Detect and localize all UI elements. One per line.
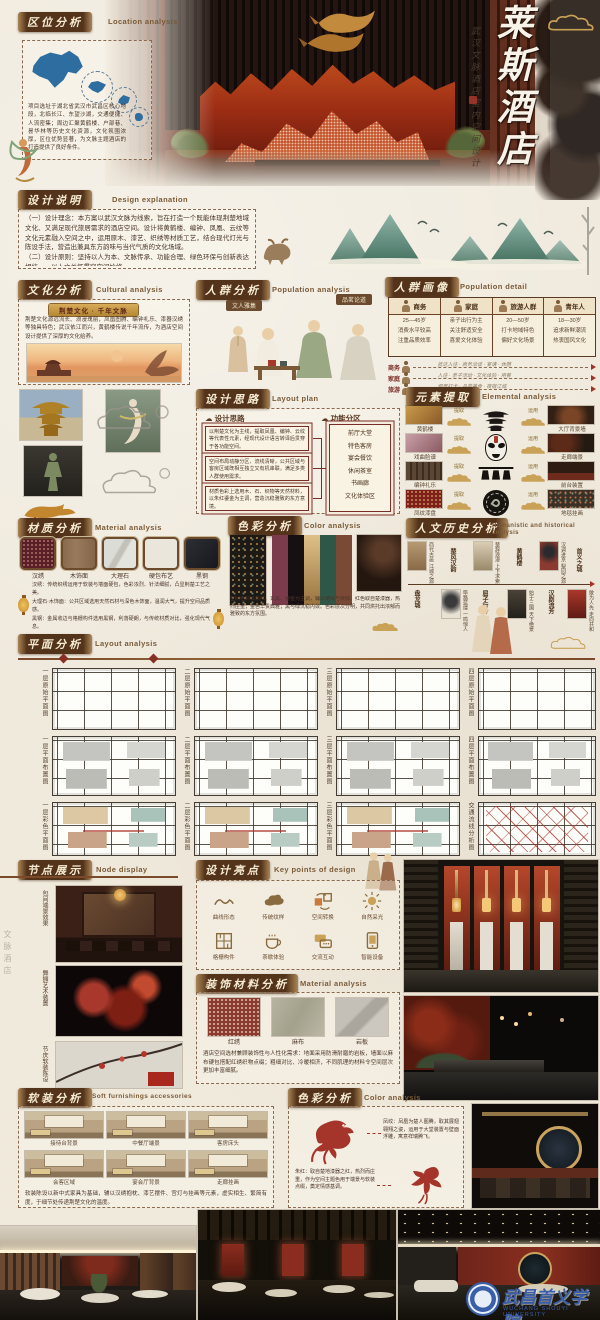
highlight-item: 传统纹样 bbox=[249, 890, 299, 921]
soft-thumb-item: 走廊挂画 bbox=[189, 1151, 267, 1186]
opera-mask-motif-icon bbox=[486, 435, 506, 460]
floor-plan-thumbnail bbox=[478, 736, 596, 796]
extract-rows: 黄鹤楼 提取 运用 大厅背景墙 戏曲脸谱 提取 运用 走廊端景 bbox=[406, 406, 598, 516]
highlight-item: 曲线形态 bbox=[199, 890, 249, 921]
highlight-title-en: Key points of design bbox=[274, 865, 356, 874]
floor-plan-thumbnail bbox=[336, 668, 460, 730]
idea-keyword: 休闲茶室 bbox=[330, 466, 390, 479]
plan-caption: 一层彩色平面图 bbox=[40, 802, 49, 856]
material2-swatch-label: 红绣 bbox=[208, 1037, 260, 1046]
section-banner-color2: 色彩分析 bbox=[288, 1088, 362, 1108]
gold-cloud-icon bbox=[370, 622, 400, 632]
white-sofa bbox=[414, 1280, 458, 1292]
material1-p2: 大理石·木饰面：公共区域选用天然石材与深色木饰面，温润大气，提升空间品质感。 bbox=[32, 599, 210, 614]
portrait-col-cells: 25—45岁消费水平较高注重品质效率 bbox=[389, 315, 440, 349]
history-thumb bbox=[540, 542, 558, 570]
soft-sketch bbox=[189, 1151, 267, 1177]
extract-row: 编钟礼乐 提取 运用 前台装置 bbox=[406, 462, 598, 488]
phoenix-flying-icon bbox=[297, 1113, 369, 1165]
history-thumb bbox=[408, 542, 426, 570]
section-banner-explain: 设计说明 bbox=[18, 190, 92, 210]
highlight-box: 曲线形态 传统纹样 空间转换 自然采光 格栅构件 茶歇体验 交流互动 智能设备 bbox=[196, 880, 400, 970]
cloud-scroll-icon bbox=[96, 462, 180, 502]
arrow-right-icon bbox=[591, 375, 596, 381]
nodes-divider bbox=[0, 876, 178, 878]
connector-line bbox=[313, 468, 321, 469]
portrait-col-header: 家庭 bbox=[441, 298, 492, 315]
bronze-bells-motif-icon bbox=[476, 465, 516, 485]
extract-label: 提取 bbox=[444, 491, 474, 498]
district-map-circle bbox=[129, 107, 149, 127]
plan-caption: 二层彩色平面图 bbox=[182, 802, 191, 856]
culture-title: 文化分析 bbox=[27, 284, 83, 297]
history-name: 盘龙城 bbox=[412, 590, 421, 608]
node-photo-2 bbox=[56, 966, 182, 1036]
timeline-node: 楚辞浪漫 上下求索 bbox=[474, 542, 501, 583]
interior-reference-photo bbox=[357, 535, 401, 591]
soft-sketch bbox=[107, 1112, 185, 1138]
plan-cell: 二层彩色平面图 bbox=[182, 802, 318, 856]
reception-counter bbox=[434, 1060, 544, 1072]
extract-label: 提取 bbox=[444, 463, 474, 470]
idea-title: 设计思路 bbox=[205, 393, 261, 406]
portrait-col-header: 青年人 bbox=[544, 298, 595, 315]
connector-line bbox=[313, 498, 321, 499]
district-map bbox=[135, 113, 143, 121]
material1-title-en: Material analysis bbox=[95, 523, 162, 532]
school-emblem bbox=[466, 1282, 500, 1316]
palette-swatch bbox=[272, 535, 288, 605]
node-photo-3 bbox=[56, 1042, 182, 1088]
color2-title-en: Color analysis bbox=[364, 1093, 421, 1102]
extract-title: 元素提取 bbox=[415, 391, 471, 404]
section-banner-idea: 设计思路 bbox=[196, 389, 270, 409]
soft-thumb-caption: 接待台背景 bbox=[25, 1139, 103, 1147]
side-note: 文脉酒店 bbox=[2, 930, 13, 1040]
apply-label: 运用 bbox=[518, 491, 548, 498]
page-title: 莱斯酒店 bbox=[486, 4, 538, 180]
wood-screen bbox=[0, 1253, 60, 1293]
highlight-item: 自然采光 bbox=[348, 890, 398, 921]
render-photo-lobby bbox=[404, 996, 598, 1100]
set-tables bbox=[212, 1282, 246, 1292]
material2-swatch-item: 岩板 bbox=[336, 998, 388, 1046]
floor-plan-thumbnail bbox=[478, 802, 596, 856]
material2-swatch bbox=[208, 998, 260, 1036]
soft-sketch bbox=[25, 1112, 103, 1138]
highlight-item: 智能设备 bbox=[348, 930, 398, 961]
gold-cloud-icon bbox=[544, 10, 594, 36]
result-caption: 走廊端景 bbox=[548, 453, 596, 461]
final-render-photo-2 bbox=[198, 1210, 396, 1320]
source-caption: 戏曲脸谱 bbox=[406, 453, 444, 461]
highlight-label: 自然采光 bbox=[348, 913, 398, 921]
material-swatch-item: 黑钢 bbox=[184, 537, 220, 580]
highlight-label: 传统纹样 bbox=[249, 913, 299, 921]
result-thumbnail bbox=[548, 434, 594, 452]
node-caption: 包间端景效果 bbox=[40, 890, 49, 960]
soft-box: 接待台背景 中餐厅端景 客房床头 会客区域 宴会厅背景 走廊挂画 软装陈设以新中… bbox=[18, 1106, 274, 1208]
palette-swatch bbox=[320, 535, 336, 605]
cloud-scroll-icon bbox=[92, 398, 180, 440]
section-banner-portrait: 人群画像 bbox=[385, 277, 459, 297]
apsara-illustration bbox=[6, 134, 44, 186]
portrait-col-label: 青年人 bbox=[565, 301, 585, 311]
portrait-column: 青年人 18—30岁追求新鲜潮流热衷国风文化 bbox=[544, 298, 595, 356]
material2-swatch bbox=[336, 998, 388, 1036]
material-swatch-item: 汉绣 bbox=[20, 537, 56, 580]
population-tag2-label: 品茗论道 bbox=[342, 298, 366, 304]
divider-diamond bbox=[59, 654, 69, 664]
pagoda-motif-icon bbox=[476, 407, 516, 431]
render-photo-niches bbox=[404, 860, 598, 992]
plans-title: 平面分析 bbox=[27, 638, 83, 651]
leader-line bbox=[377, 1185, 391, 1186]
portrait-column: 旅游人群 20—50岁打卡地域特色偏好文化场景 bbox=[493, 298, 545, 356]
plan-cell: 一层彩色平面图 bbox=[40, 802, 176, 856]
portrait-col-header: 商务 bbox=[389, 298, 440, 315]
gold-cornice bbox=[482, 1112, 588, 1116]
highlight-label: 曲线形态 bbox=[199, 913, 249, 921]
idea-box-2: 空间布局动静分区、流线清晰，公共区域与客房区域既相互独立又有机串联，满足多类人群… bbox=[205, 456, 309, 481]
material-swatch-label: 黑钢 bbox=[184, 571, 220, 580]
highlight-item: 茶歇体验 bbox=[249, 930, 299, 961]
swap-squares-icon bbox=[311, 890, 335, 912]
population-tag: 品茗论道 bbox=[336, 294, 372, 305]
color-palette bbox=[272, 535, 352, 605]
section-banner-highlight: 设计亮点 bbox=[196, 860, 270, 880]
section-banner-extract: 元素提取 bbox=[406, 387, 480, 407]
material1-swatches: 汉绣 木饰面 大理石 硬包布艺 黑钢 bbox=[20, 537, 220, 580]
starry-ceiling bbox=[398, 1210, 600, 1244]
tower-silhouette bbox=[28, 394, 74, 438]
extract-label: 提取 bbox=[444, 407, 474, 414]
material1-p1: 汉绣：传统织绣运用于软装与墙面硬包，色彩浓烈、针法细腻，凸显荆楚工艺之美。 bbox=[32, 582, 210, 597]
red-niche bbox=[474, 866, 500, 970]
node-caption: 舞狮艺术装置 bbox=[40, 970, 49, 1036]
floor-plan-thumbnail bbox=[478, 668, 596, 730]
chat-bubbles-icon bbox=[311, 930, 335, 952]
highlight-label: 格栅构件 bbox=[199, 953, 249, 961]
sun-icon bbox=[360, 890, 384, 912]
material-swatch-label: 硬包布艺 bbox=[143, 571, 179, 580]
gold-cloud-arrow-icon bbox=[445, 417, 473, 427]
history-note: 敢为人先 走向共和 bbox=[588, 590, 595, 631]
extract-title-en: Elemental analysis bbox=[482, 392, 556, 401]
extract-row: 黄鹤楼 提取 运用 大厅背景墙 bbox=[406, 406, 598, 432]
source-thumbnail bbox=[406, 490, 442, 508]
material-swatch bbox=[143, 537, 179, 570]
result-caption: 地毯挂画 bbox=[548, 509, 596, 517]
color2-title: 色彩分析 bbox=[297, 1092, 353, 1105]
idea-right-header: ☁ 功能分区 bbox=[321, 413, 361, 424]
highlight-label: 智能设备 bbox=[348, 953, 398, 961]
section-banner-material2: 装饰材料分析 bbox=[196, 974, 298, 994]
portrait-title: 人群画像 bbox=[394, 281, 450, 294]
render-photo-roundwindow bbox=[472, 1104, 598, 1208]
lantern-glow bbox=[114, 889, 126, 901]
soft-thumb-caption: 宴会厅背景 bbox=[107, 1178, 185, 1186]
journey-label: 家庭 bbox=[388, 374, 400, 383]
ceiling-grid bbox=[198, 1210, 396, 1240]
gold-cloud-arrow-icon bbox=[519, 501, 547, 511]
plan-cell: 二层原始平面图 bbox=[182, 668, 318, 730]
material-swatch-label: 木饰面 bbox=[61, 571, 97, 580]
soft-thumb-caption: 中餐厅端景 bbox=[107, 1139, 185, 1147]
red-artwork-frames bbox=[222, 1244, 244, 1276]
material2-swatch-item: 麻布 bbox=[272, 998, 324, 1046]
wood-screen bbox=[140, 1253, 196, 1293]
explain-title-en: Design explanation bbox=[112, 195, 188, 204]
location-title: 区位分析 bbox=[27, 16, 83, 29]
stone-floor bbox=[404, 970, 598, 992]
reflective-floor bbox=[404, 1072, 598, 1100]
portrait-col-cells: 18—30岁追求新鲜潮流热衷国风文化 bbox=[544, 315, 595, 349]
stone-pedestal bbox=[450, 922, 463, 970]
material2-title-en: Material analysis bbox=[300, 979, 367, 988]
pavilion-silhouette bbox=[27, 344, 181, 382]
idea-keyword: 书画廊 bbox=[330, 478, 390, 491]
mountains-cranes-illustration bbox=[298, 206, 586, 270]
material2-swatch bbox=[272, 998, 324, 1036]
material-swatch bbox=[102, 537, 138, 570]
cloud-carving-icon bbox=[261, 890, 285, 912]
plan-cell: 三层原始平面图 bbox=[324, 668, 460, 730]
plan-caption: 三层原始平面图 bbox=[324, 668, 333, 730]
plan-caption: 一层原始平面图 bbox=[40, 668, 49, 730]
china-map bbox=[29, 49, 85, 93]
palette-swatch-gold bbox=[304, 535, 320, 605]
section-banner-color1: 色彩分析 bbox=[228, 516, 302, 536]
timeline-node: 筚路蓝缕 一鸣惊人 bbox=[442, 590, 469, 631]
highlight-label: 交流互动 bbox=[298, 953, 348, 961]
gold-cloud-arrow-icon bbox=[445, 501, 473, 511]
plan-cell: 四层原始平面图 bbox=[466, 668, 596, 730]
journey-route: 入住 · 亲子活动 · 文化体验 · 用餐 bbox=[438, 372, 511, 379]
idea-right-header-label: 功能分区 bbox=[331, 414, 361, 423]
material-swatch-item: 大理石 bbox=[102, 537, 138, 580]
soft-thumb-item: 会客区域 bbox=[25, 1151, 103, 1186]
hero-fade-bottom bbox=[105, 150, 550, 186]
connector-line bbox=[321, 468, 327, 469]
smart-device-icon bbox=[360, 930, 384, 952]
idea-keyword: 前厅大堂 bbox=[330, 428, 390, 441]
population-title: 人群分析 bbox=[205, 284, 261, 297]
plans-title-en: Layout analysis bbox=[95, 639, 157, 648]
history-name: 黄鹤楼 bbox=[514, 548, 523, 566]
soft-title: 软装分析 bbox=[27, 1092, 83, 1105]
extract-row: 凤纹漆盘 提取 运用 地毯挂画 bbox=[406, 490, 598, 516]
result-thumbnail bbox=[548, 462, 594, 480]
plan-caption: 四层原始平面图 bbox=[466, 668, 475, 730]
timeline-arrow-icon bbox=[590, 581, 595, 587]
person-icon bbox=[454, 300, 462, 312]
material2-title: 装饰材料分析 bbox=[205, 978, 289, 991]
portrait-column: 家庭 亲子出行为主关注舒适安全喜爱文化体验 bbox=[441, 298, 493, 356]
school-name-en: WUCHANG SHOUYI UNIVERSITY bbox=[503, 1306, 600, 1318]
idea-keywords-box: 前厅大堂 特色客房 宴会餐饮 休闲茶室 书画廊 文化体验区 bbox=[329, 424, 391, 512]
apply-label: 运用 bbox=[518, 407, 548, 414]
plan-cell: 三层彩色平面图 bbox=[324, 802, 460, 856]
highlight-label: 茶歇体验 bbox=[249, 953, 299, 961]
material-swatch-item: 木饰面 bbox=[61, 537, 97, 580]
source-thumbnail bbox=[406, 406, 442, 424]
portrait-column: 商务 25—45岁消费水平较高注重品质效率 bbox=[389, 298, 441, 356]
extract-row: 戏曲脸谱 提取 运用 走廊端景 bbox=[406, 434, 598, 460]
portrait-table: 商务 25—45岁消费水平较高注重品质效率 家庭 亲子出行为主关注舒适安全喜爱文… bbox=[388, 297, 596, 357]
idea-keyword: 特色客房 bbox=[330, 441, 390, 454]
dining-tables bbox=[20, 1288, 60, 1300]
result-caption: 前台装置 bbox=[548, 481, 596, 489]
round-art-mirror bbox=[518, 1252, 552, 1286]
floor-plan-thumbnail bbox=[52, 668, 176, 730]
teacup-icon bbox=[261, 930, 285, 952]
section-banner-plans: 平面分析 bbox=[18, 634, 92, 654]
section-banner-culture: 文化分析 bbox=[18, 280, 92, 300]
portrait-col-label: 家庭 bbox=[465, 301, 478, 311]
classical-figures-illustration bbox=[210, 306, 390, 384]
floor-plan-thumbnail bbox=[52, 736, 176, 796]
history-name: 汉剧流芳 bbox=[546, 590, 555, 614]
color1-title-en: Color analysis bbox=[304, 521, 361, 530]
history-title-en: Humanistic and historical analysis bbox=[492, 523, 596, 537]
gold-cloud-arrow-icon bbox=[445, 473, 473, 483]
plan-cell: 一层原始平面图 bbox=[40, 668, 176, 730]
node-photo-1 bbox=[56, 886, 182, 962]
source-thumbnail bbox=[406, 462, 442, 480]
plan-cell: 一层平面布置图 bbox=[40, 736, 176, 796]
explain-title: 设计说明 bbox=[27, 194, 83, 207]
journey-route: 抵达入住 · 商务洽谈 · 宴请 · 休憩 bbox=[438, 361, 511, 368]
section-banner-material1: 材质分析 bbox=[18, 518, 92, 538]
plan-caption: 三层平面布置图 bbox=[324, 736, 333, 796]
arrow-right-icon bbox=[591, 386, 596, 392]
timeline-node: 商代古邑 江城之源 bbox=[408, 542, 435, 583]
source-caption: 凤纹漆盘 bbox=[406, 509, 444, 517]
soft-sketch bbox=[107, 1151, 185, 1177]
plum-branch-illustration bbox=[56, 1042, 182, 1088]
portrait-col-label: 商务 bbox=[413, 301, 426, 311]
province-map-circle bbox=[81, 71, 113, 103]
highlight-item: 空间转换 bbox=[298, 890, 348, 921]
color2-note2: 朱红：取自楚地漆器之红，热烈而庄重，作为空间主题色用于端景与软装点缀，奠定情感基… bbox=[295, 1169, 375, 1192]
journey-label: 旅游 bbox=[388, 385, 400, 394]
soft-thumb-caption: 客房床头 bbox=[189, 1139, 267, 1147]
material-swatch-label: 汉绣 bbox=[20, 571, 56, 580]
explain-p2: （二）设计原则：坚持以人为本、文脉传承、功能合理、绿色环保与创新表达相统一，以人… bbox=[25, 253, 249, 266]
palette-swatch bbox=[336, 535, 352, 605]
floor-plan-thumbnail bbox=[336, 802, 460, 856]
history-note: 汉调进京 梨园之源 bbox=[560, 542, 567, 583]
timeline-node: 汉调进京 梨园之源 bbox=[540, 542, 567, 583]
material1-paragraphs: 汉绣：传统织绣运用于软装与墙面硬包，色彩浓烈、针法细腻，凸显荆楚工艺之美。 大理… bbox=[32, 582, 210, 631]
red-niche bbox=[504, 866, 530, 970]
history-note: 始于三国 天下绝景 bbox=[528, 590, 535, 631]
idea-left-header-label: 设计思路 bbox=[215, 414, 245, 423]
source-caption: 编钟礼乐 bbox=[406, 481, 444, 489]
plant bbox=[90, 1274, 108, 1294]
journey-line: 入住 · 亲子活动 · 文化体验 · 用餐 bbox=[413, 378, 588, 379]
plan-cell: 二层平面布置图 bbox=[182, 736, 318, 796]
material-swatch-item: 硬包布艺 bbox=[143, 537, 179, 580]
material2-swatch-label: 岩板 bbox=[336, 1037, 388, 1046]
bronze-figure-silhouette bbox=[36, 451, 70, 493]
journey-label: 商务 bbox=[388, 363, 400, 372]
population-title-en: Population analysis bbox=[272, 285, 350, 294]
idea-left-header: ☁ 设计思路 bbox=[205, 413, 245, 424]
plan-caption: 交通流线分析图 bbox=[466, 802, 475, 856]
person-icon bbox=[554, 300, 562, 312]
highlight-title: 设计亮点 bbox=[205, 864, 261, 877]
gold-cloud-arrow-icon bbox=[519, 473, 547, 483]
phoenix-standing-icon bbox=[391, 1159, 457, 1205]
node-caption: 节庆软装陈设 bbox=[40, 1046, 49, 1092]
ceiling bbox=[0, 1226, 196, 1252]
bamboo-ink-illustration bbox=[580, 205, 596, 277]
plan-caption: 二层平面布置图 bbox=[182, 736, 191, 796]
moon-window bbox=[536, 1126, 582, 1172]
culture-title-en: Cultural analysis bbox=[96, 285, 163, 294]
plan-cell: 四层平面布置图 bbox=[466, 736, 596, 796]
floor-plan-thumbnail bbox=[194, 668, 318, 730]
lamp-glow bbox=[452, 898, 461, 912]
material2-swatch-item: 红绣 bbox=[208, 998, 260, 1046]
section-banner-location: 区位分析 bbox=[18, 12, 92, 32]
wave-icon bbox=[212, 890, 236, 912]
section-banner-soft: 软装分析 bbox=[18, 1088, 92, 1108]
material1-p3: 黑钢：金属收边与格栅构件选用黑钢，利落硬朗，与传统材质对比，强化现代气息。 bbox=[32, 616, 210, 631]
soft-sketch bbox=[189, 1112, 267, 1138]
history-name: 楚风汉韵 bbox=[448, 548, 457, 572]
person-icon bbox=[402, 300, 410, 312]
color2-note1: 凤纹：凤凰为楚人图腾，取其展翅翱翔之姿，运用于大堂装置与壁面浮雕，寓意祥瑞腾飞。 bbox=[383, 1119, 459, 1142]
arrow-right-icon bbox=[591, 364, 596, 370]
portrait-col-cells: 20—50岁打卡地域特色偏好文化场景 bbox=[493, 315, 544, 349]
plan-caption: 四层平面布置图 bbox=[466, 736, 475, 796]
dining-silhouette bbox=[480, 1178, 590, 1198]
source-thumbnail bbox=[406, 434, 442, 452]
portrait-col-label: 旅游人群 bbox=[510, 301, 536, 311]
floor-plan-thumbnail bbox=[194, 736, 318, 796]
connector-line bbox=[313, 438, 321, 439]
yellow-crane-tower-photo bbox=[20, 390, 82, 440]
material-swatch-label: 大理石 bbox=[102, 571, 138, 580]
floor-plan-thumbnail bbox=[52, 802, 176, 856]
pendant-lamp bbox=[455, 870, 458, 900]
soft-desc: 软装陈设以新中式家具为基础，辅以汉绣抱枕、漆艺摆件、宫灯与挂画等元素，虚实相生、… bbox=[25, 1190, 267, 1207]
highlight-label: 空间转换 bbox=[298, 913, 348, 921]
plan-caption: 三层彩色平面图 bbox=[324, 802, 333, 856]
history-note: 楚辞浪漫 上下求索 bbox=[494, 542, 501, 583]
history-thumb bbox=[568, 590, 586, 618]
soft-thumb-item: 宴会厅背景 bbox=[107, 1151, 185, 1186]
material1-text-box: 汉绣：传统织绣运用于软装与墙面硬包，色彩浓烈、针法细腻，凸显荆楚工艺之美。 大理… bbox=[18, 582, 224, 632]
soft-sketch bbox=[25, 1151, 103, 1177]
idea-keyword: 文化体验区 bbox=[330, 491, 390, 504]
gold-cloud-arrow-icon bbox=[445, 445, 473, 455]
hanging-lights bbox=[500, 1016, 504, 1020]
sunset-painting bbox=[27, 344, 181, 382]
culture-desc: 荆楚文化源远流长、浪漫瑰丽，凤凰图腾、编钟礼乐、漆器汉绣等独具特色；武汉依江而兴… bbox=[25, 316, 183, 342]
material-swatch bbox=[184, 537, 220, 570]
plan-caption: 二层原始平面图 bbox=[182, 668, 191, 730]
timeline-node: 敢为人先 走向共和 bbox=[568, 590, 595, 631]
lantern-icon bbox=[213, 612, 224, 626]
rock-art-ox-illustration bbox=[260, 236, 294, 266]
hanfu-figures-illustration bbox=[468, 602, 514, 656]
plan-cell: 交通流线分析图 bbox=[466, 802, 596, 856]
result-caption: 大厅背景墙 bbox=[548, 425, 596, 433]
